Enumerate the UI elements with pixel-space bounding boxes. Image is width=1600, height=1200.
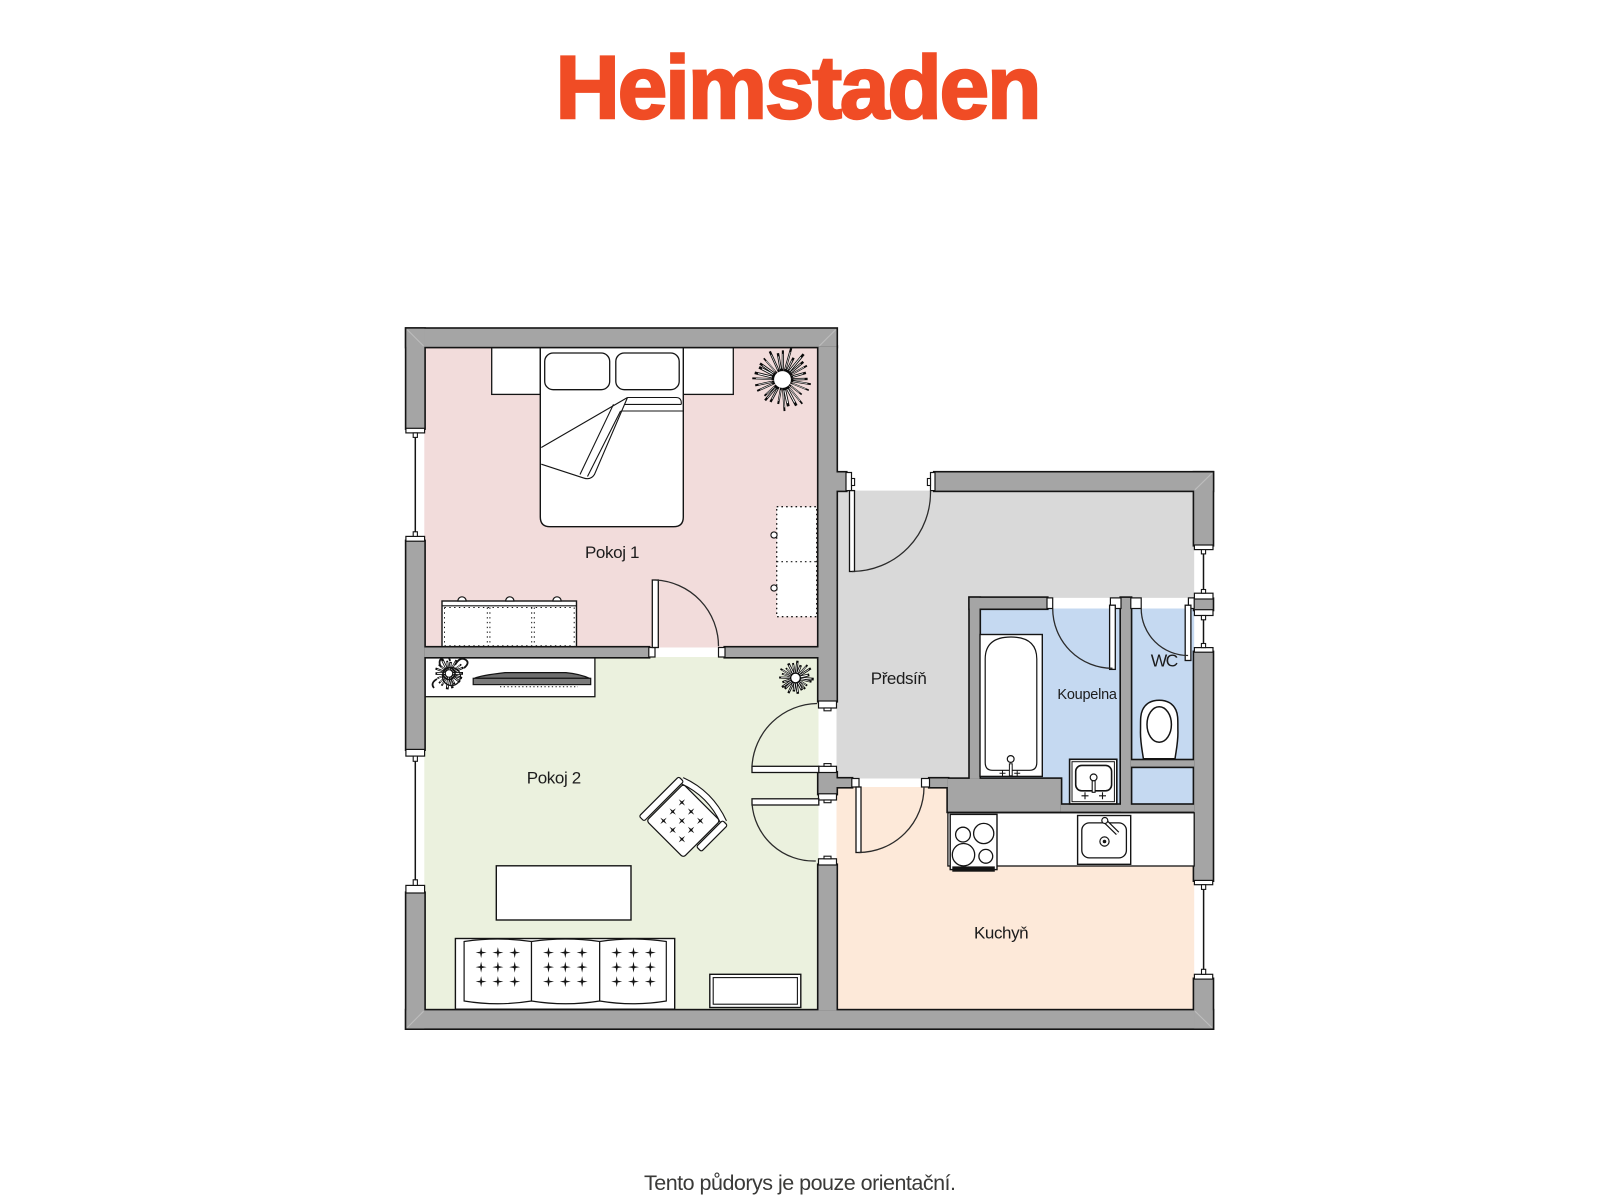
svg-text:Koupelna: Koupelna	[1057, 687, 1118, 703]
svg-text:Předsíň: Předsíň	[871, 669, 927, 688]
svg-text:Kuchyň: Kuchyň	[974, 923, 1029, 942]
svg-text:Pokoj 1: Pokoj 1	[585, 543, 640, 562]
svg-text:Pokoj 2: Pokoj 2	[527, 769, 582, 788]
svg-text:WC: WC	[1151, 650, 1179, 670]
svg-text:Heimstaden: Heimstaden	[556, 37, 1042, 137]
svg-text:Tento půdorys je pouze orienta: Tento půdorys je pouze orientační.	[644, 1171, 956, 1195]
